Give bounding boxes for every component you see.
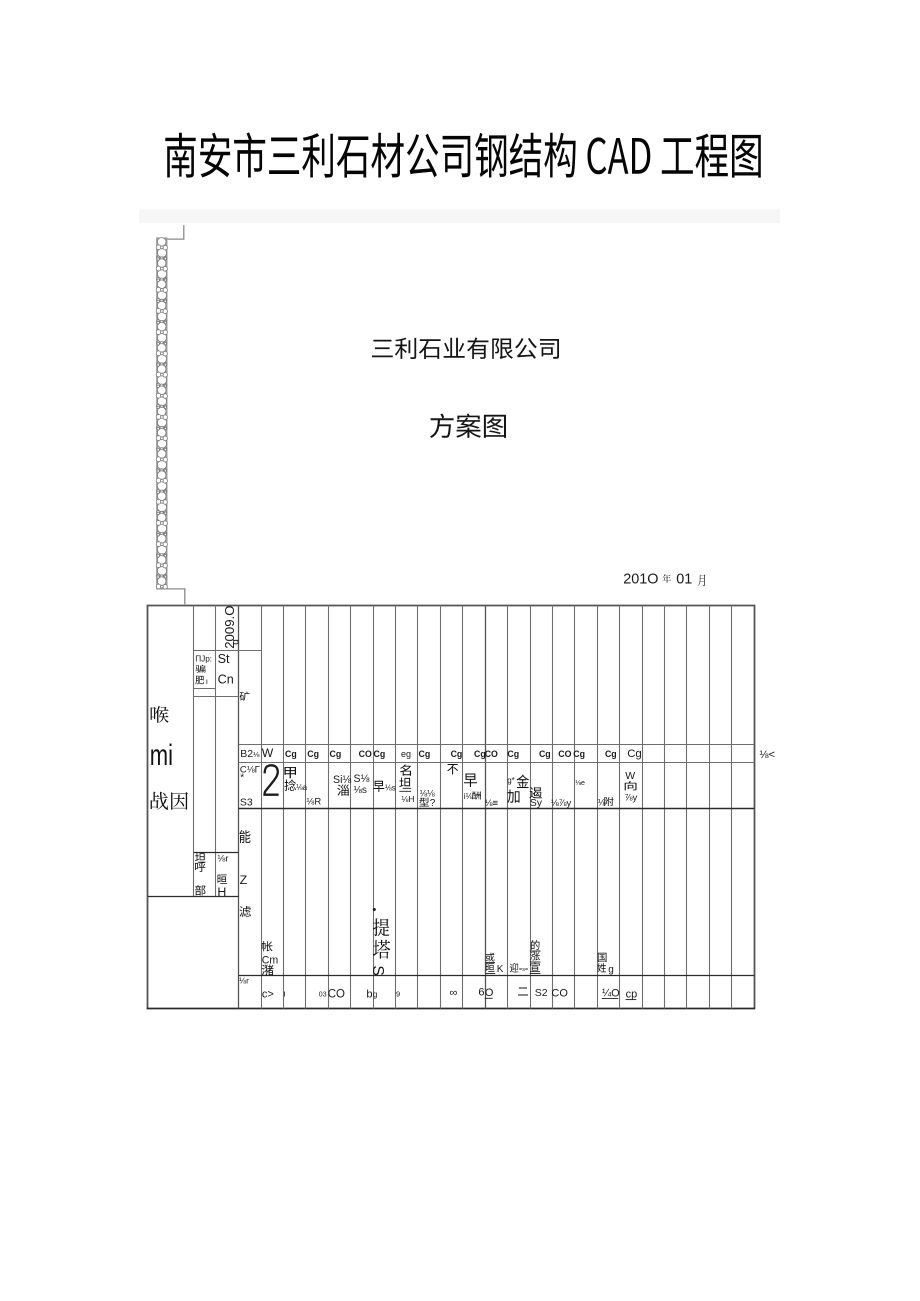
svg-text:?: ? bbox=[430, 798, 436, 809]
svg-text:ı: ı bbox=[283, 989, 286, 999]
svg-text:∞: ∞ bbox=[450, 987, 458, 999]
svg-text:Cg: Cg bbox=[419, 749, 431, 759]
svg-text:Cg: Cg bbox=[605, 749, 617, 759]
svg-text:⅛s: ⅛s bbox=[354, 785, 367, 796]
svg-text:201O: 201O bbox=[623, 571, 658, 587]
svg-text:CO: CO bbox=[558, 749, 571, 759]
svg-text:S⅛: S⅛ bbox=[354, 773, 370, 785]
svg-text:⅛r: ⅛r bbox=[239, 976, 249, 986]
svg-text:6: 6 bbox=[478, 987, 484, 999]
svg-text:S2: S2 bbox=[535, 987, 548, 999]
svg-text:K: K bbox=[497, 964, 504, 975]
svg-text:Cg: Cg bbox=[285, 749, 297, 759]
svg-text:g*: g* bbox=[507, 776, 515, 785]
svg-text:ɑ: ɑ bbox=[231, 639, 242, 645]
svg-text:S3: S3 bbox=[240, 797, 253, 809]
svg-text:W: W bbox=[262, 746, 274, 760]
svg-text:St: St bbox=[218, 652, 230, 666]
svg-text:CO: CO bbox=[328, 989, 345, 1001]
svg-text:⅛r: ⅛r bbox=[217, 854, 228, 865]
svg-text:9: 9 bbox=[396, 990, 400, 999]
svg-text:O: O bbox=[485, 987, 494, 999]
svg-text:g: g bbox=[373, 990, 377, 999]
svg-text:b: b bbox=[366, 989, 372, 1001]
svg-text:Cn: Cn bbox=[218, 672, 234, 686]
svg-text:Cg: Cg bbox=[374, 749, 386, 759]
svg-text:⅛s: ⅛s bbox=[385, 784, 396, 793]
svg-text:⅛≡: ⅛≡ bbox=[485, 798, 499, 809]
svg-text:Cg: Cg bbox=[573, 749, 585, 759]
svg-text:W: W bbox=[625, 770, 635, 782]
svg-text:CO: CO bbox=[551, 988, 568, 1000]
svg-text:*: * bbox=[240, 773, 244, 784]
svg-text:H: H bbox=[217, 885, 226, 899]
svg-text:¼O: ¼O bbox=[602, 988, 620, 1000]
svg-text:⅛R: ⅛R bbox=[306, 797, 321, 808]
svg-text:⅛e: ⅛e bbox=[575, 780, 585, 787]
svg-text:CO: CO bbox=[485, 749, 498, 759]
svg-text:S: S bbox=[369, 965, 386, 976]
svg-text:CO: CO bbox=[359, 749, 372, 759]
svg-text:Cg: Cg bbox=[539, 749, 551, 759]
svg-text:c>: c> bbox=[262, 989, 274, 1001]
svg-text:B2⅛: B2⅛ bbox=[240, 748, 260, 760]
svg-text:⅛<: ⅛< bbox=[759, 749, 775, 761]
svg-text:Si⅛: Si⅛ bbox=[333, 774, 351, 786]
svg-text:Sy: Sy bbox=[530, 797, 543, 809]
svg-text:Cg: Cg bbox=[451, 749, 463, 759]
svg-text:eg: eg bbox=[401, 749, 411, 759]
svg-text:Cg: Cg bbox=[330, 749, 342, 759]
svg-text:g: g bbox=[608, 964, 614, 975]
svg-text:Z: Z bbox=[240, 873, 248, 887]
svg-text:⅛a: ⅛a bbox=[296, 783, 308, 792]
svg-text:=s=: =s= bbox=[519, 967, 528, 973]
svg-text:cp: cp bbox=[626, 989, 638, 1001]
svg-text:Cg: Cg bbox=[307, 749, 319, 759]
svg-text:Cg: Cg bbox=[507, 749, 519, 759]
svg-text:01: 01 bbox=[676, 571, 692, 587]
svg-text:⅛⅞y: ⅛⅞y bbox=[551, 798, 572, 809]
svg-text:Cg: Cg bbox=[627, 748, 642, 760]
svg-text:⅞y: ⅞y bbox=[625, 793, 638, 804]
svg-text:ı: ı bbox=[206, 677, 208, 686]
svg-text:ΠJp:: ΠJp: bbox=[195, 654, 212, 663]
svg-text:⅛⅛: ⅛⅛ bbox=[420, 789, 436, 799]
svg-text:mi: mi bbox=[150, 738, 173, 772]
svg-text:03: 03 bbox=[319, 992, 327, 999]
svg-text:⅛H: ⅛H bbox=[401, 794, 414, 804]
